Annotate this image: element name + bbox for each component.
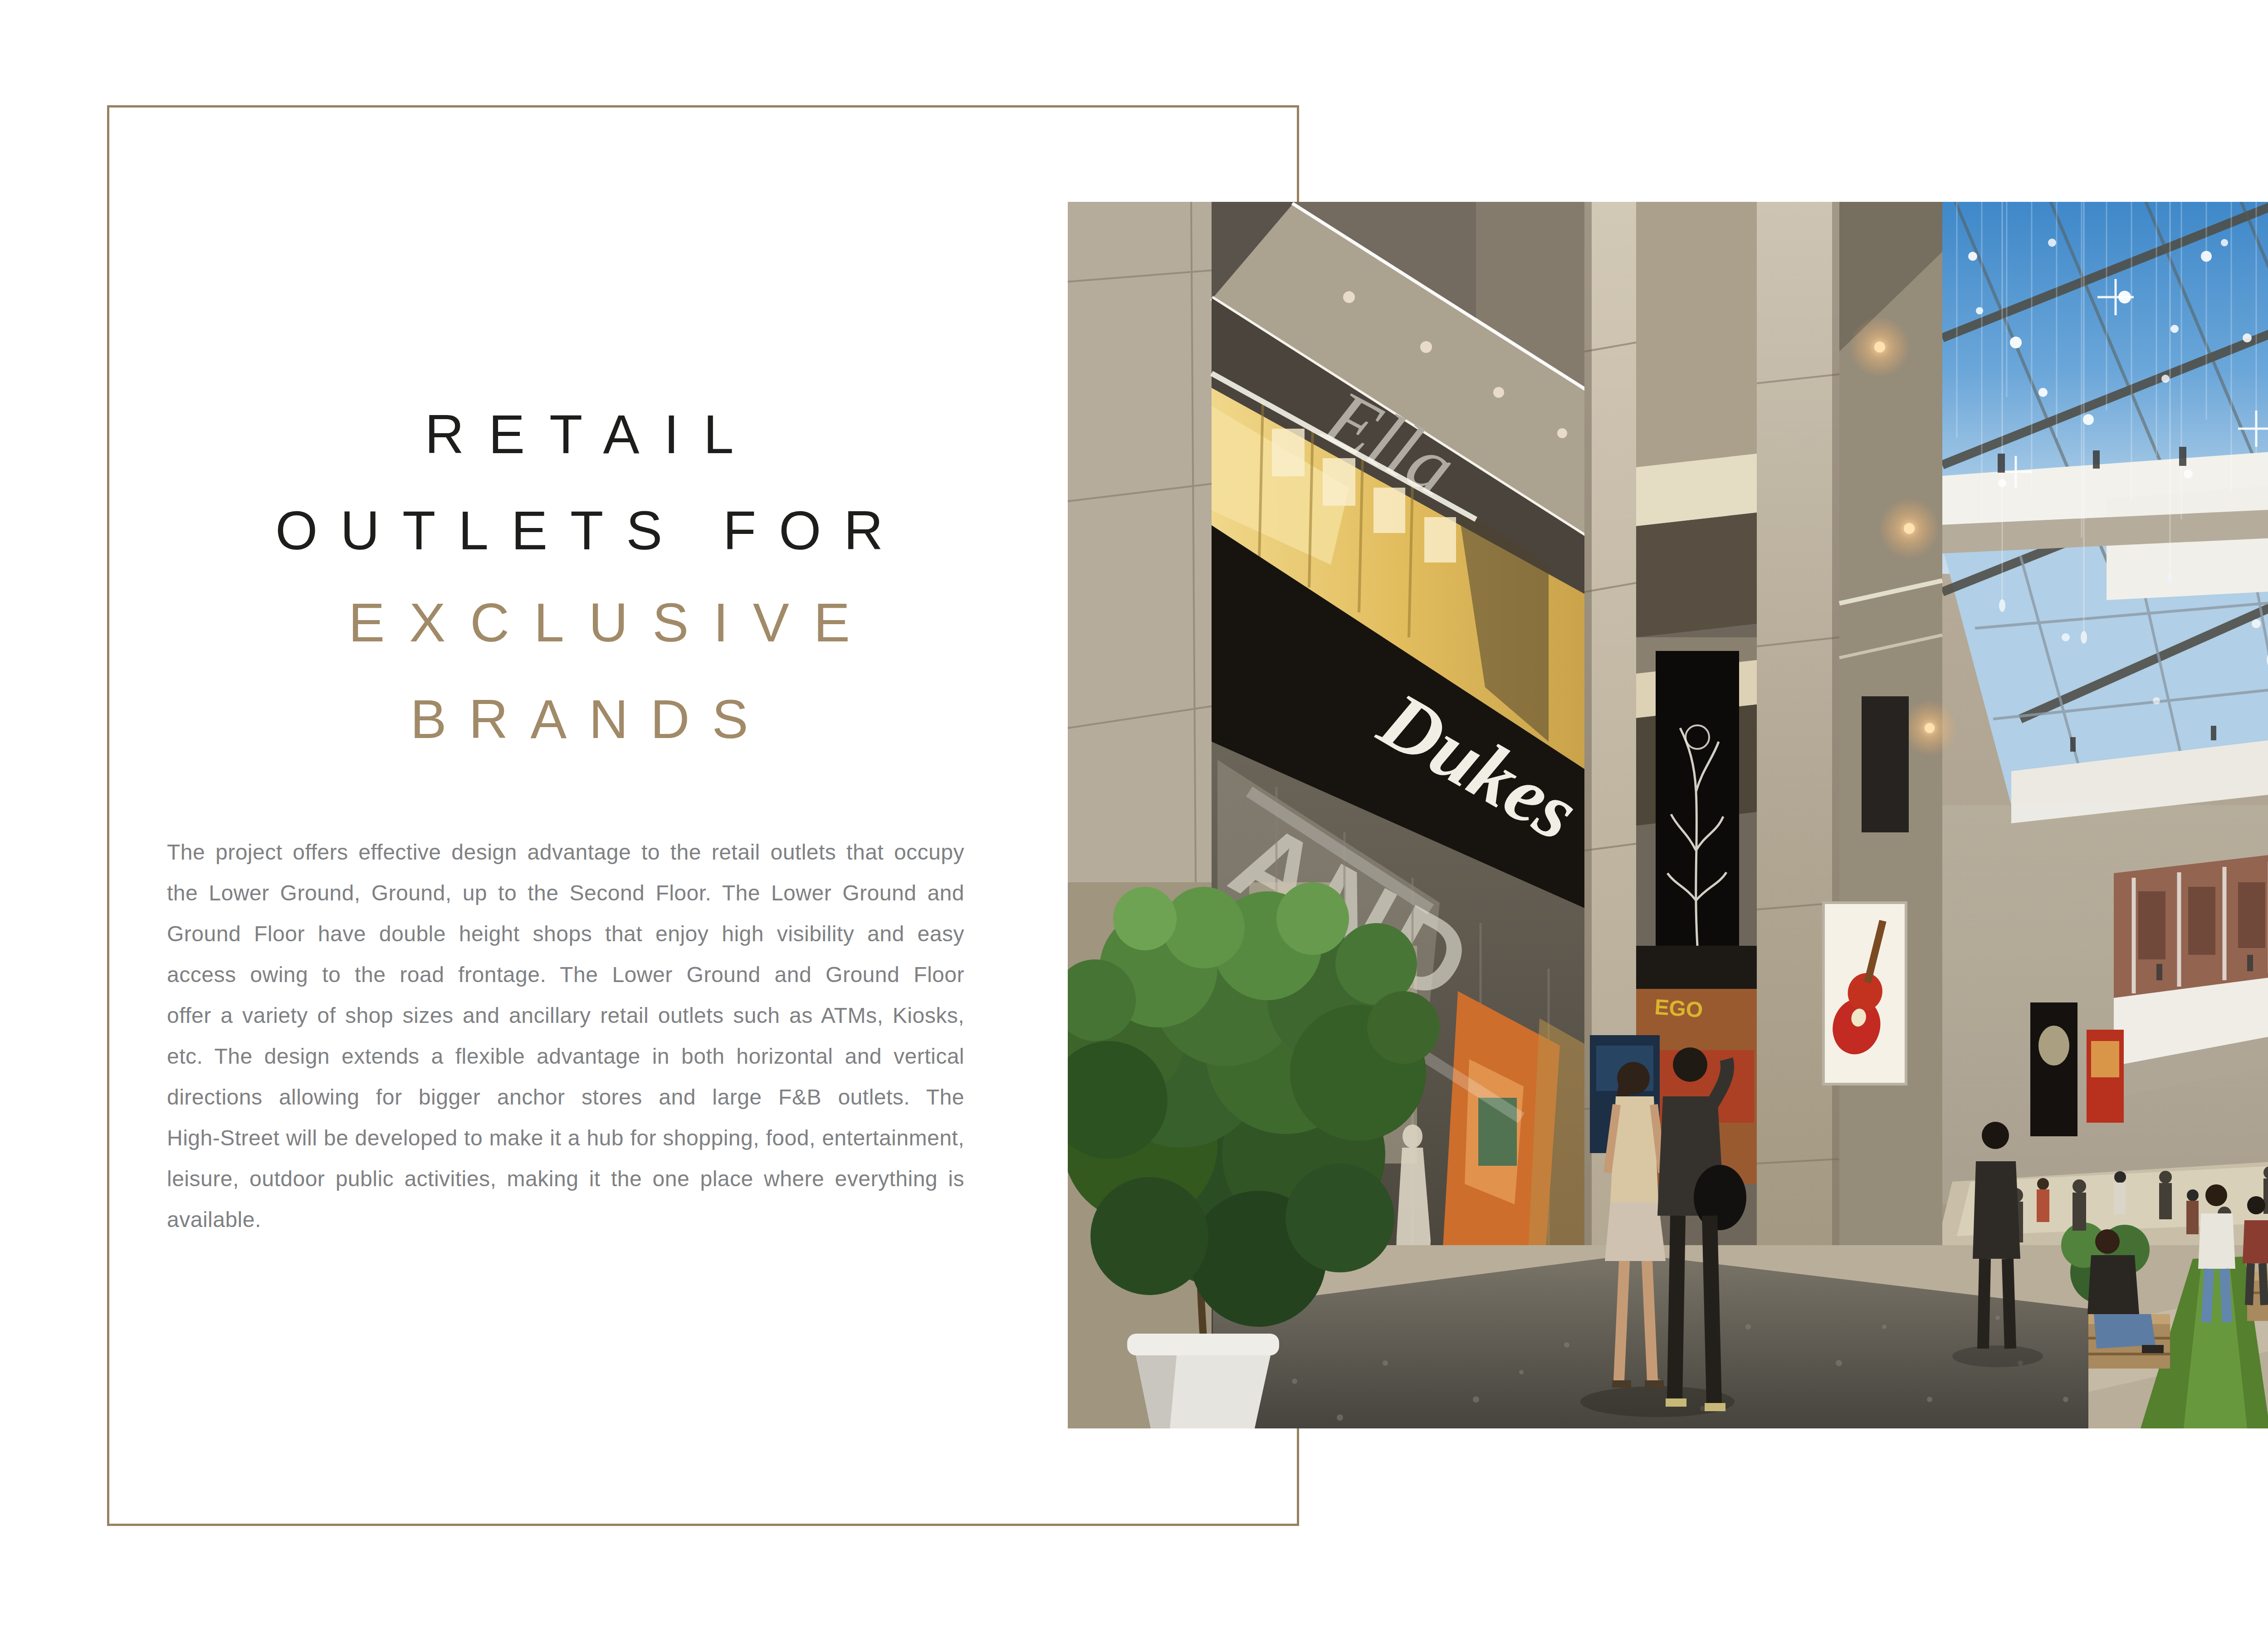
svg-text:EGO: EGO [1654, 995, 1704, 1022]
